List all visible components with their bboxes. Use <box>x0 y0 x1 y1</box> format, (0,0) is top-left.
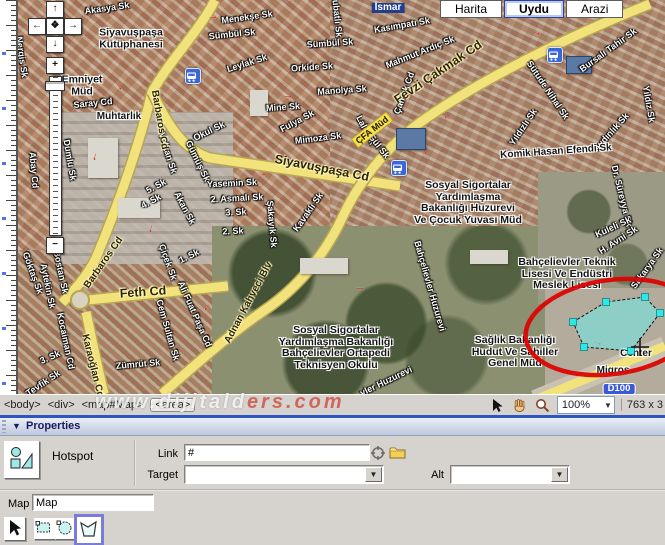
select-tool-icon[interactable] <box>488 397 505 414</box>
vertical-ruler <box>0 0 18 394</box>
browse-folder-icon[interactable] <box>389 445 407 460</box>
panel-grip[interactable] <box>2 420 6 433</box>
tag-selector-item[interactable]: <map#Map> <box>82 399 144 411</box>
target-label: Target <box>140 469 178 481</box>
window-size-indicator[interactable]: 763 x 3 <box>621 399 663 411</box>
element-type-label: Hotspot <box>52 449 93 463</box>
chevron-down-icon[interactable]: ▼ <box>365 467 382 482</box>
tag-selector-item[interactable]: <area> <box>150 398 195 412</box>
divider <box>134 440 136 486</box>
link-input[interactable] <box>184 444 370 461</box>
map-name-label: Map <box>8 498 29 510</box>
alt-label: Alt <box>424 469 444 481</box>
hotspot-handle[interactable] <box>581 344 588 351</box>
divider <box>0 489 665 491</box>
link-label: Link <box>148 448 178 460</box>
hand-tool-icon[interactable] <box>511 397 528 414</box>
hotspot-handle[interactable] <box>628 348 635 355</box>
map-canvas[interactable]: Akasya SkMenekşe SkSümbül SkSümbül SkLey… <box>0 0 665 394</box>
tag-selector: <body><div><map#Map><area> <box>4 398 195 412</box>
hotspot-handle[interactable] <box>603 299 610 306</box>
properties-body: Hotspot Link Target ▼ Alt ▼ Map <box>0 436 665 545</box>
status-bar: <body><div><map#Map><area> www.dijitalde… <box>0 394 665 416</box>
pointer-hotspot-tool[interactable] <box>4 517 26 541</box>
tag-selector-item[interactable]: <div> <box>48 399 75 411</box>
magnification-select[interactable]: 100%▼ <box>557 396 615 414</box>
hotspot-handle[interactable] <box>642 294 649 301</box>
hotspot-polygon[interactable] <box>573 297 660 351</box>
point-to-file-icon[interactable] <box>370 445 386 461</box>
properties-header[interactable]: ▼ Properties <box>0 418 665 436</box>
map-name-input[interactable] <box>32 494 154 511</box>
properties-title: Properties <box>26 418 80 435</box>
target-select[interactable]: ▼ <box>184 465 384 484</box>
rectangle-hotspot-tool[interactable] <box>34 518 56 540</box>
zoom-tool-icon[interactable] <box>534 397 551 414</box>
dreamweaver-window: Akasya SkMenekşe SkSümbül SkSümbül SkLey… <box>0 0 665 545</box>
chevron-down-icon: ▼ <box>604 401 612 410</box>
collapse-triangle-icon[interactable]: ▼ <box>12 418 21 435</box>
hotspot-icon-button[interactable] <box>4 441 40 479</box>
hotspot-annotation-layer <box>0 0 665 394</box>
hotspot-shapes-icon <box>6 443 36 475</box>
hotspot-handle[interactable] <box>657 310 664 317</box>
tag-selector-item[interactable]: <body> <box>4 399 41 411</box>
polygon-hotspot-tool[interactable] <box>74 514 104 545</box>
chevron-down-icon[interactable]: ▼ <box>551 467 568 482</box>
alt-select[interactable]: ▼ <box>450 465 570 484</box>
hotspot-handle[interactable] <box>570 319 577 326</box>
